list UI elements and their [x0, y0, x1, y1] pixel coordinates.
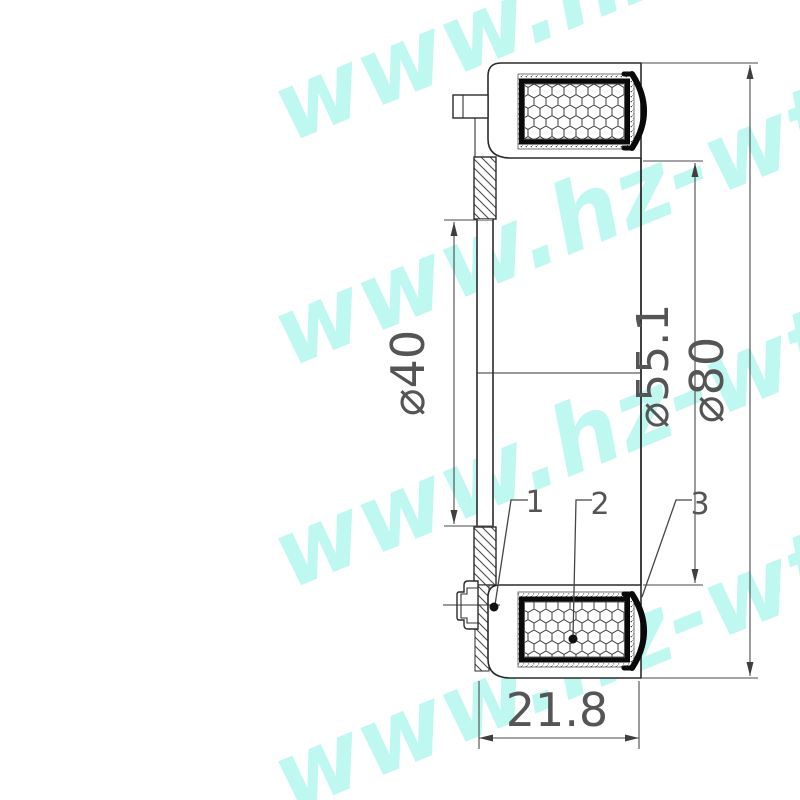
callout-1-dot: [490, 603, 499, 612]
callout-3-number: 3: [690, 487, 709, 522]
callout-2-number: 2: [590, 487, 609, 522]
width-label: 21.8: [506, 683, 608, 737]
phi40-label: ⌀40: [381, 330, 435, 416]
callout-2-dot: [569, 635, 578, 644]
technical-drawing: ⌀40 ⌀55.1 ⌀80 21.8: [0, 0, 800, 800]
coil-windings: [525, 84, 625, 139]
phi80-label: ⌀80: [680, 337, 734, 423]
phi55-label: ⌀55.1: [628, 304, 679, 428]
lower-flange: [474, 527, 496, 585]
terminal-tab: [453, 95, 488, 118]
dimension-width: 21.8: [479, 681, 639, 749]
callout-1-number: 1: [525, 485, 544, 520]
drawing-canvas: www.hz-wt.c www.hz-wt.c www.hz-wt.c www.…: [0, 0, 800, 800]
callout-3: 3: [642, 487, 710, 597]
part-top-coil-section: [453, 63, 644, 158]
upper-flange: [474, 157, 496, 219]
center-lines: [443, 158, 641, 605]
part-bottom-coil-section: [488, 585, 644, 678]
coil-windings: [525, 602, 625, 657]
